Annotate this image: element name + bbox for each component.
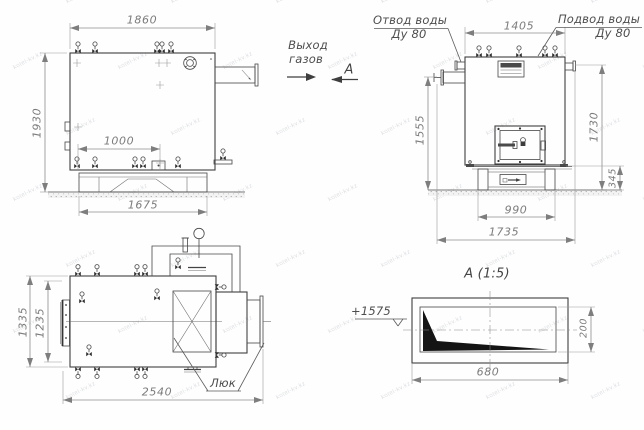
gas-exit-label-line1: Выход: [288, 38, 328, 52]
water-inlet-label: Подвод воды: [558, 12, 640, 26]
section-view: [355, 291, 595, 384]
dim-front-pipe-height: 1555: [414, 115, 427, 145]
side-top-valves: [75, 42, 174, 53]
water-inlet-dn: Ду 80: [595, 26, 630, 40]
water-outlet-dn: Ду 80: [391, 27, 426, 41]
dim-plan-outer-width: 1335: [17, 307, 30, 337]
gas-exit-label-line2: газов: [289, 52, 323, 66]
dim-front-base-height: 345: [608, 168, 619, 188]
dim-section-height: 200: [579, 318, 590, 338]
dim-plan-inner-width: 1235: [34, 308, 47, 338]
plan-top-valves: [75, 258, 181, 276]
dim-side-overall-height: 1930: [31, 108, 44, 138]
section-marker-letter: А: [344, 63, 353, 78]
dim-side-valve-span: 1000: [104, 135, 134, 148]
elevation-value: +1575: [351, 304, 391, 318]
nameplate: [498, 61, 524, 77]
gas-exit-arrow: [287, 73, 316, 81]
dim-side-base-width: 1675: [128, 199, 158, 212]
plan-bottom-valves: [75, 367, 148, 378]
elevation-mark: [355, 319, 407, 326]
water-outlet-label: Отвод воды: [373, 13, 447, 27]
dim-section-length: 680: [477, 366, 500, 379]
grate-wedge: [423, 310, 549, 351]
ash-door: [500, 175, 526, 185]
dim-side-overall-width: 1860: [127, 14, 157, 27]
hatch-label: Люк: [210, 376, 236, 390]
side-bottom-valves: [74, 149, 226, 168]
section-title: А (1:5): [464, 267, 510, 282]
furnace-door: [495, 126, 546, 164]
dim-plan-length: 2540: [142, 386, 172, 399]
dim-front-base-width: 990: [505, 204, 528, 217]
dim-front-stub-height: 1730: [588, 112, 601, 142]
dim-front-total-width: 1735: [489, 226, 519, 239]
boiler-technical-drawing: kotel-kv.kzkotel-kv.kzkotel-kv.kzkotel-k…: [0, 0, 644, 430]
front-top-valves: [476, 46, 558, 57]
dim-front-top-width: 1405: [504, 20, 534, 33]
